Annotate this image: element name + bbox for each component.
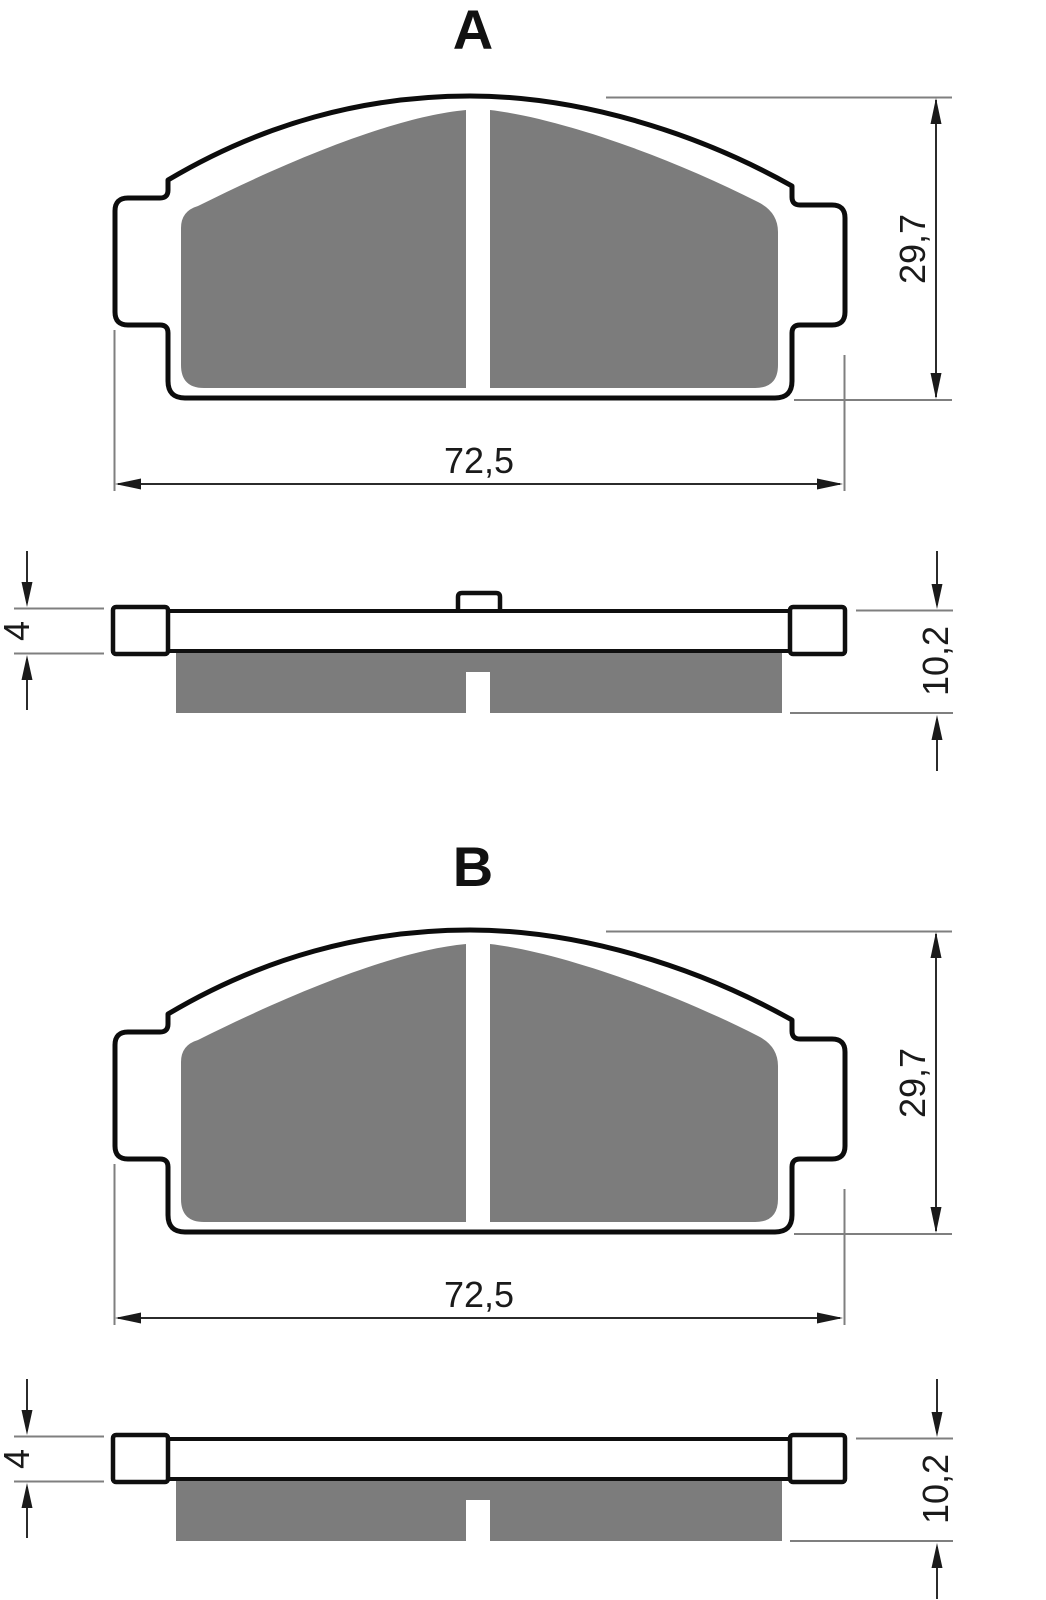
pad-a-side-view — [14, 551, 953, 771]
view-a — [14, 96, 953, 771]
pad-b-total-thickness-value: 10,2 — [915, 1454, 956, 1524]
pad-a-backing-thickness-value: 4 — [0, 621, 37, 641]
pad-b-height-value: 29,7 — [892, 1048, 933, 1118]
pad-a-height-value: 29,7 — [892, 214, 933, 284]
pad-b-width-value: 72,5 — [444, 1274, 514, 1315]
pad-b-backing-thickness-value: 4 — [0, 1449, 37, 1469]
view-a-label: A — [453, 0, 493, 61]
pad-b-side-view — [14, 1379, 953, 1599]
view-b-label: B — [453, 835, 493, 898]
pad-b-front-view — [115, 930, 845, 1232]
view-b — [14, 930, 953, 1599]
pad-a-width-value: 72,5 — [444, 440, 514, 481]
pad-a-front-view — [115, 96, 845, 398]
pad-a-total-thickness-value: 10,2 — [915, 626, 956, 696]
brake-pad-technical-drawing: A 29,7 72,5 4 10,2 B 29,7 72,5 4 10,2 — [0, 0, 1046, 1600]
